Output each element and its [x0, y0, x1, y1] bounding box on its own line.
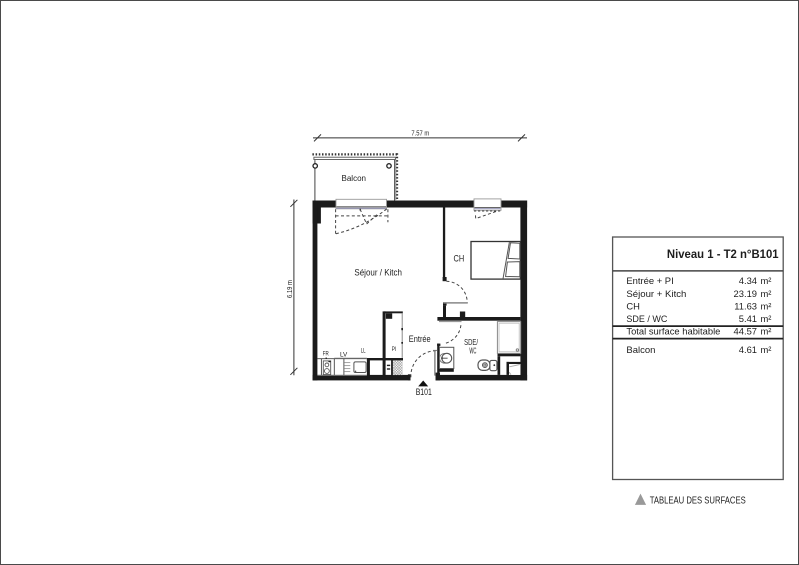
svg-text:6.19 m: 6.19 m — [285, 280, 294, 298]
svg-text:4.34: 4.34 — [739, 275, 757, 286]
svg-text:11.63: 11.63 — [734, 300, 757, 311]
svg-text:LV: LV — [340, 351, 348, 358]
svg-text:Balcon: Balcon — [342, 174, 367, 183]
svg-text:m²: m² — [761, 344, 772, 355]
svg-text:4.61: 4.61 — [739, 344, 757, 355]
svg-text:44.57: 44.57 — [734, 326, 757, 337]
svg-text:Niveau 1 - T2 n°B101: Niveau 1 - T2 n°B101 — [667, 248, 779, 261]
svg-text:WC: WC — [469, 346, 476, 355]
svg-text:CH: CH — [454, 254, 465, 264]
svg-text:CH: CH — [626, 300, 640, 311]
svg-text:Séjour + Kitch: Séjour + Kitch — [626, 288, 686, 299]
svg-text:Entrée + PI: Entrée + PI — [626, 275, 673, 286]
svg-text:7.57 m: 7.57 m — [411, 128, 429, 137]
svg-text:m²: m² — [761, 326, 772, 337]
svg-text:LL: LL — [361, 347, 366, 354]
svg-text:Total surface habitable: Total surface habitable — [626, 326, 720, 337]
svg-text:m²: m² — [761, 275, 772, 286]
svg-text:PI: PI — [392, 346, 397, 353]
svg-text:m²: m² — [761, 288, 772, 299]
svg-text:m²: m² — [761, 300, 772, 311]
svg-text:SDE / WC: SDE / WC — [626, 313, 667, 324]
svg-text:Entrée: Entrée — [409, 334, 431, 344]
svg-text:B101: B101 — [416, 387, 432, 397]
svg-text:m²: m² — [761, 313, 772, 324]
svg-text:FR: FR — [323, 351, 329, 358]
svg-text:5.41: 5.41 — [739, 313, 757, 324]
svg-text:23.19: 23.19 — [734, 288, 757, 299]
svg-text:TABLEAU DES SURFACES: TABLEAU DES SURFACES — [650, 496, 746, 507]
svg-text:Balcon: Balcon — [626, 344, 655, 355]
svg-text:Séjour / Kitch: Séjour / Kitch — [354, 268, 402, 278]
